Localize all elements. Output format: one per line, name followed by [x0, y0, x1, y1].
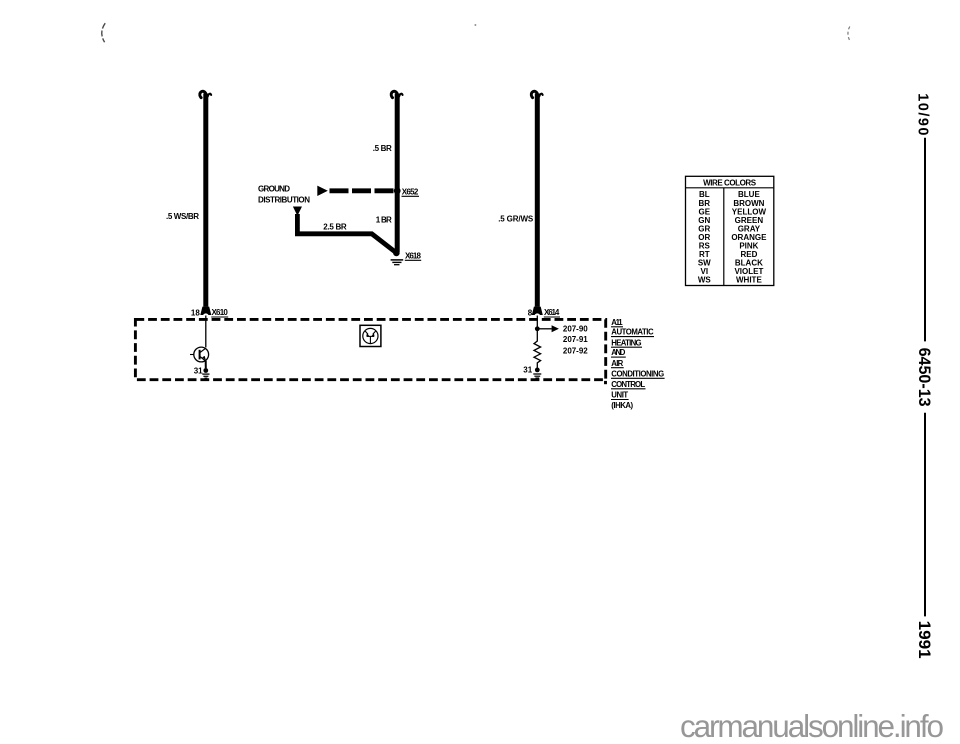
svg-text:.5 WS/BR: .5 WS/BR — [166, 212, 199, 221]
svg-text:18: 18 — [191, 308, 200, 317]
svg-text:HEATING: HEATING — [611, 338, 641, 347]
svg-text:(IHKA): (IHKA) — [611, 401, 633, 410]
svg-text:WHITE: WHITE — [736, 276, 762, 285]
svg-text:X618: X618 — [405, 251, 421, 260]
svg-text:X610: X610 — [212, 308, 229, 317]
svg-text:6450-13: 6450-13 — [915, 348, 934, 407]
svg-text:WS: WS — [698, 276, 712, 285]
svg-text:.5 GR/WS: .5 GR/WS — [498, 215, 534, 224]
svg-text:207-91: 207-91 — [563, 335, 588, 344]
svg-text:1991: 1991 — [915, 621, 934, 659]
svg-text:2.5 BR: 2.5 BR — [323, 222, 347, 231]
svg-text:X614: X614 — [544, 308, 560, 317]
svg-text:10/90: 10/90 — [915, 93, 931, 137]
svg-text:AUTOMATIC: AUTOMATIC — [611, 328, 654, 337]
svg-text:31: 31 — [194, 366, 203, 375]
svg-text:31: 31 — [523, 365, 532, 374]
svg-text:DISTRIBUTION: DISTRIBUTION — [258, 196, 310, 205]
svg-text:carmanualsonline.info: carmanualsonline.info — [680, 708, 944, 744]
svg-text:A11: A11 — [611, 318, 623, 327]
svg-text:1 BR: 1 BR — [376, 215, 392, 224]
svg-text:207-90: 207-90 — [563, 324, 588, 333]
svg-text:GROUND: GROUND — [258, 184, 290, 193]
svg-text:8: 8 — [528, 308, 533, 317]
svg-text:UNIT: UNIT — [611, 391, 628, 400]
svg-text:.5 BR: .5 BR — [373, 144, 392, 153]
svg-text:AND: AND — [611, 348, 625, 357]
svg-text:AIR: AIR — [611, 359, 623, 368]
svg-text:WIRE COLORS: WIRE COLORS — [703, 178, 757, 187]
svg-text:CONTROL: CONTROL — [611, 380, 645, 389]
svg-text:X652: X652 — [402, 187, 419, 196]
svg-text:CONDITIONING: CONDITIONING — [611, 369, 664, 378]
svg-text:207-92: 207-92 — [563, 347, 588, 356]
